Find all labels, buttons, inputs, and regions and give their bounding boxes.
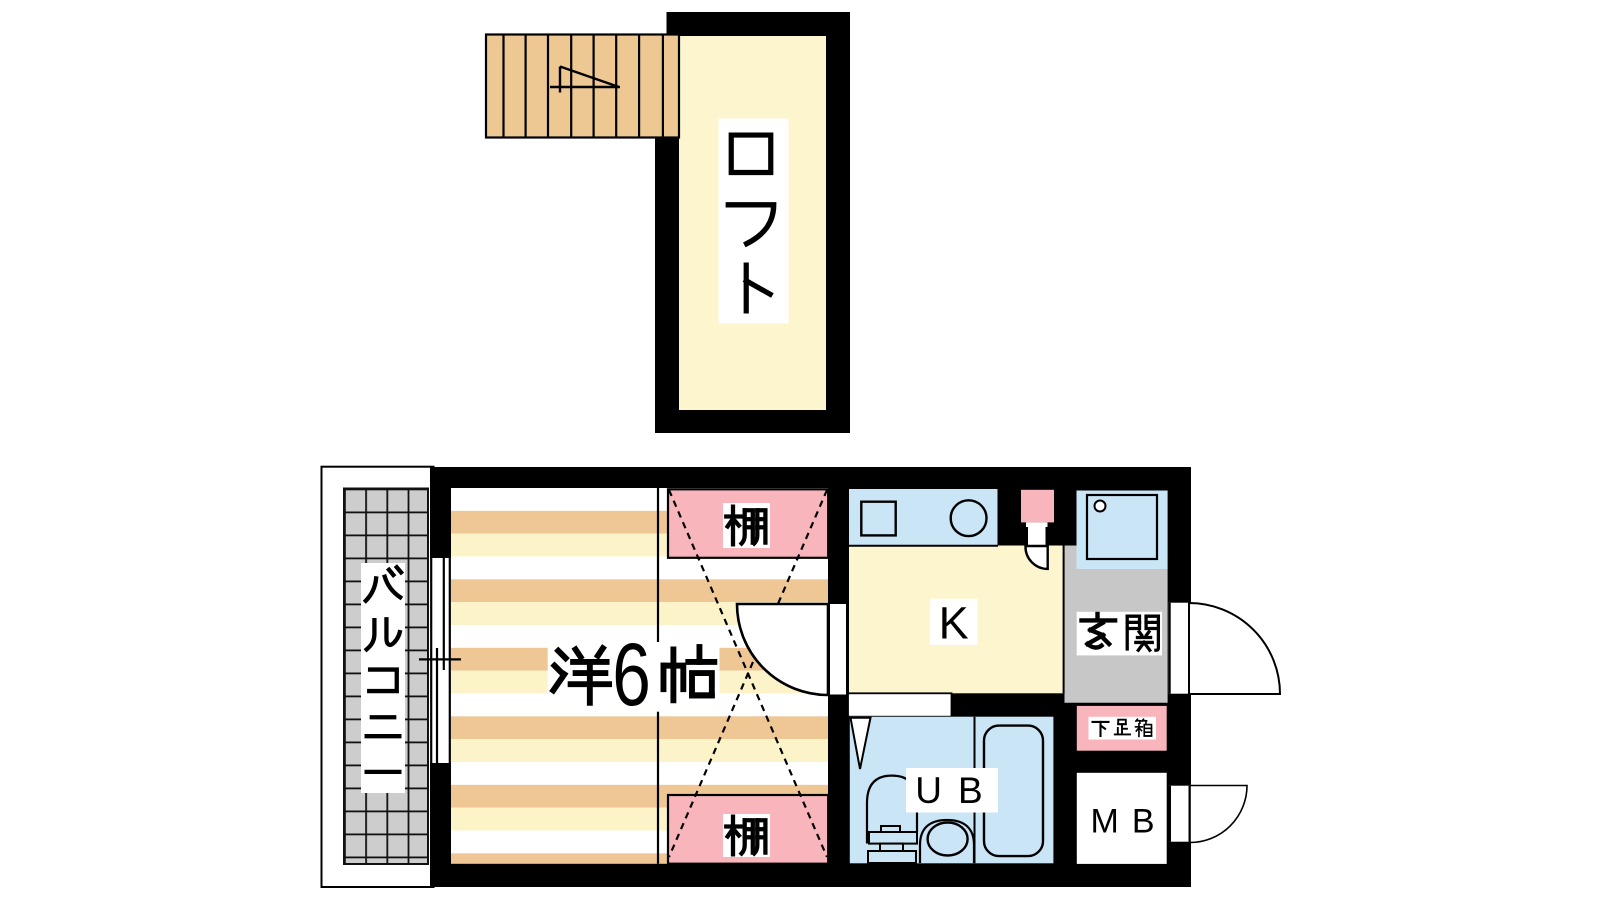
svg-text:MB: MB [1091, 802, 1168, 840]
svg-text:6: 6 [612, 625, 651, 724]
svg-text:K: K [939, 598, 969, 649]
svg-text:UB: UB [915, 770, 998, 811]
